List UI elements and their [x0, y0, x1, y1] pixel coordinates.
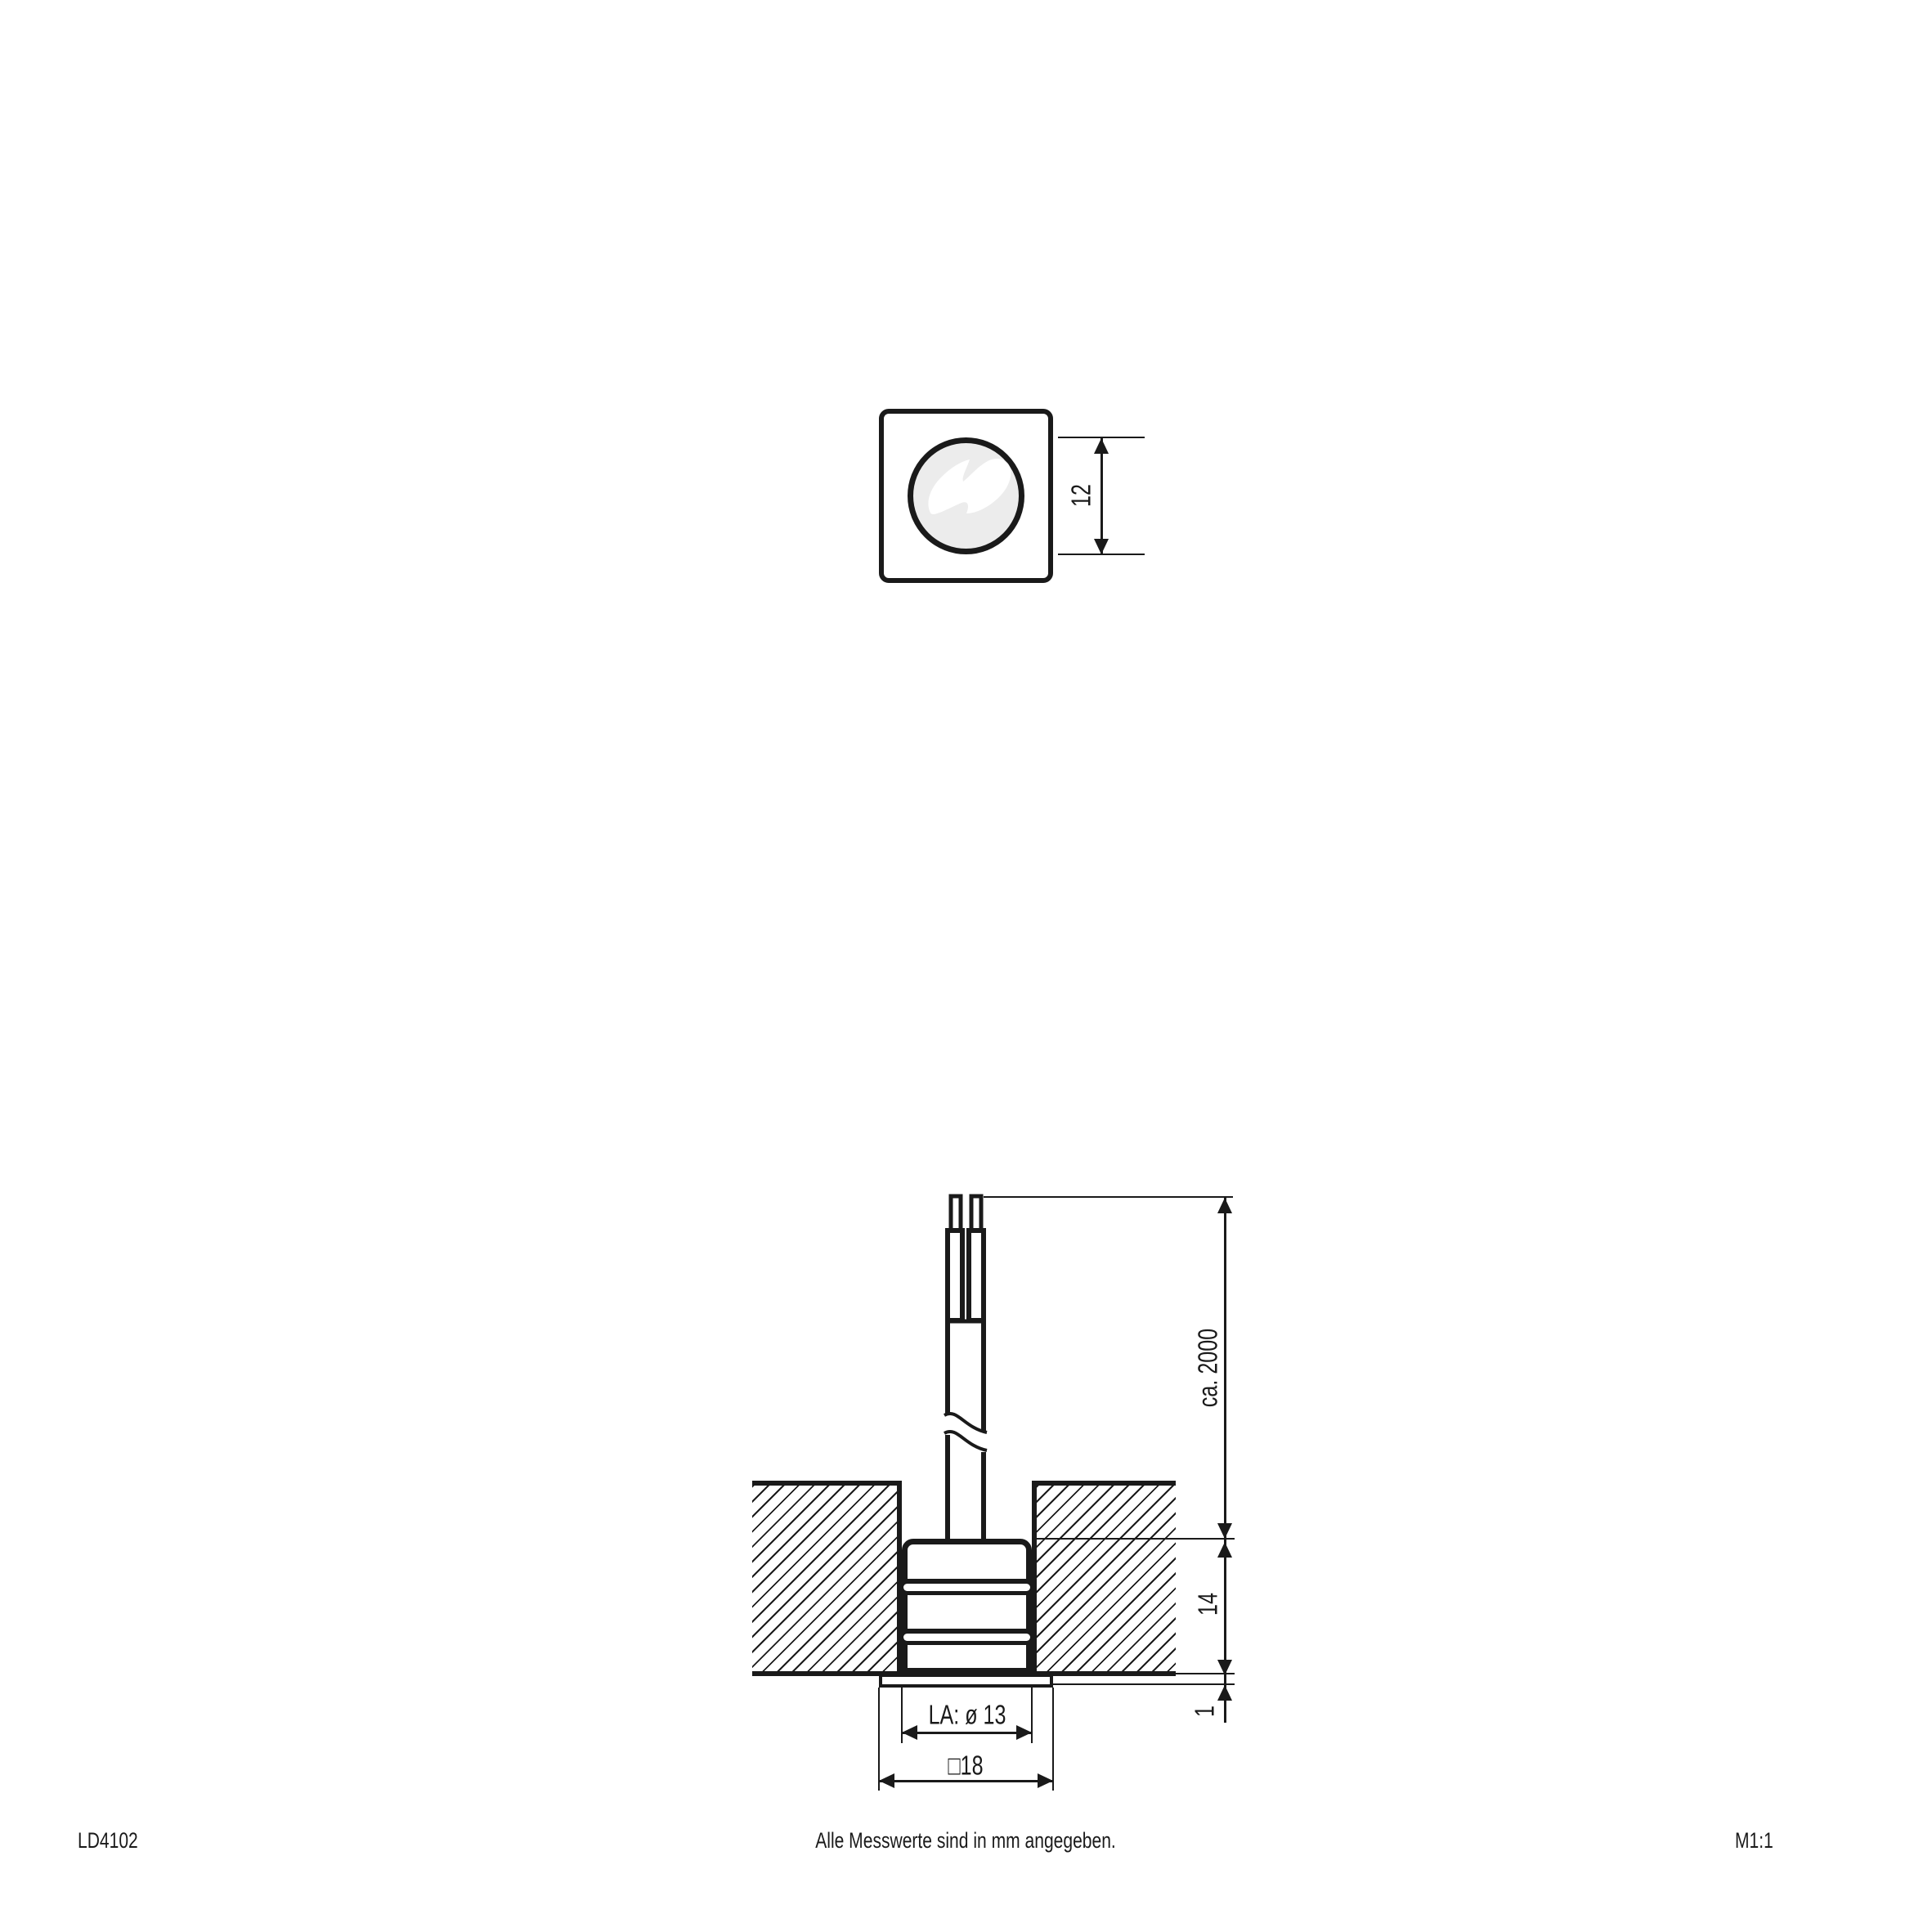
- dim-arrow-up-icon: [1217, 1542, 1232, 1558]
- dim-label-outer-size: □18: [943, 1752, 989, 1779]
- dimension-line: [902, 1732, 1032, 1734]
- dim-arrow-right-icon: [1016, 1725, 1032, 1740]
- dim-label-cable-length: ca. 2000: [1195, 1316, 1222, 1420]
- dim-arrow-up-icon: [1217, 1685, 1232, 1701]
- dim-arrow-right-icon: [1038, 1773, 1053, 1788]
- lens-highlight-icon: [908, 437, 1024, 554]
- footer-units-note: Alle Messwerte sind in mm angegeben.: [773, 1830, 1158, 1852]
- wall-section-right: [1032, 1481, 1176, 1674]
- dim-arrow-down-icon: [1094, 539, 1109, 554]
- dim-arrow-left-icon: [902, 1725, 917, 1740]
- dim-arrow-down-icon: [1217, 1660, 1232, 1675]
- dimension-line: [1224, 1198, 1226, 1723]
- dim-label-flange-thickness: 1: [1191, 1704, 1218, 1719]
- fixture-groove: [902, 1629, 1032, 1645]
- fixture-body: [902, 1539, 1032, 1674]
- dim-arrow-left-icon: [879, 1773, 894, 1788]
- cable: [932, 1190, 997, 1549]
- dimension-line: [1100, 438, 1103, 554]
- dim-label-recess-depth: 14: [1195, 1589, 1222, 1620]
- dim-arrow-up-icon: [1094, 438, 1109, 454]
- dim-arrow-up-icon: [1217, 1198, 1232, 1213]
- extension-line: [1032, 1538, 1235, 1540]
- fixture-groove: [902, 1579, 1032, 1595]
- wall-section-left: [752, 1481, 902, 1674]
- extension-line: [984, 1196, 1233, 1198]
- dim-arrow-down-icon: [1217, 1523, 1232, 1539]
- footer-model-number: LD4102: [78, 1830, 155, 1852]
- surface-line: [752, 1671, 1176, 1676]
- dim-label-cutout-diameter: LA: ø 13: [917, 1701, 1019, 1728]
- technical-drawing-canvas: 12 ca. 2000 14: [0, 0, 1932, 1932]
- dim-label-lens-diameter: 12: [1068, 481, 1095, 511]
- extension-line: [1053, 1683, 1235, 1685]
- footer-scale: M1:1: [1735, 1830, 1784, 1852]
